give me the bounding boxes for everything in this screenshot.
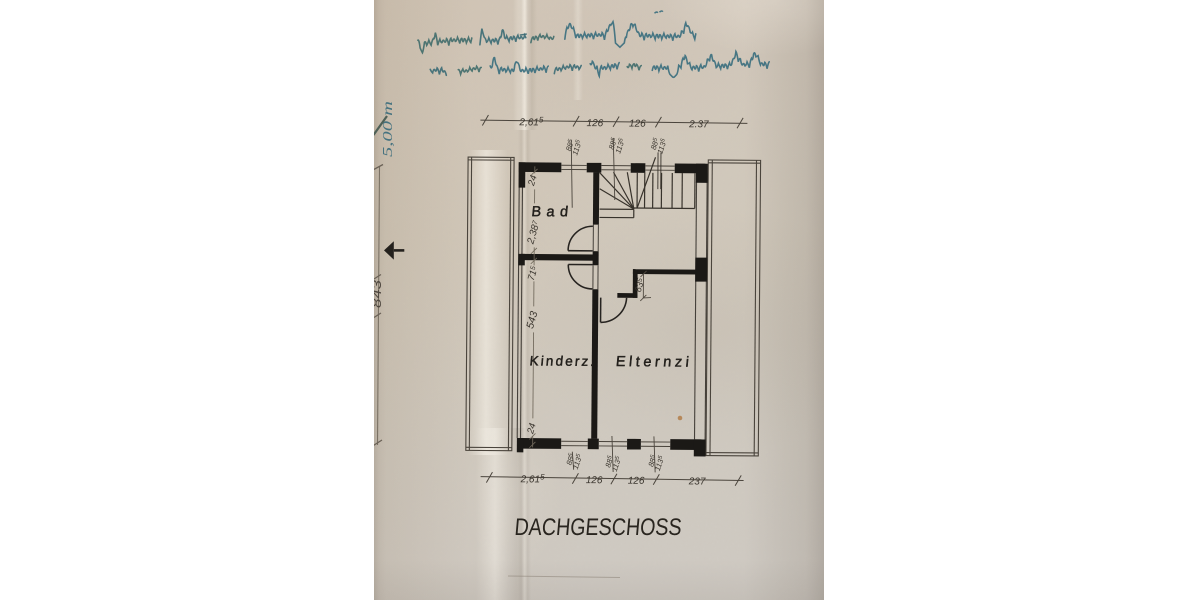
svg-text:843: 843 <box>374 279 384 308</box>
svg-text:126: 126 <box>629 119 646 130</box>
svg-text:5,00 m: 5,00 m <box>380 101 395 157</box>
svg-text:DACHGESCHOSS: DACHGESCHOSS <box>513 514 682 541</box>
svg-text:Bad: Bad <box>531 204 569 220</box>
svg-text:126: 126 <box>586 475 603 486</box>
svg-text:126: 126 <box>586 118 603 129</box>
svg-text:237: 237 <box>688 476 706 487</box>
svg-text:2.37: 2.37 <box>688 119 709 130</box>
svg-text:126: 126 <box>628 476 645 487</box>
